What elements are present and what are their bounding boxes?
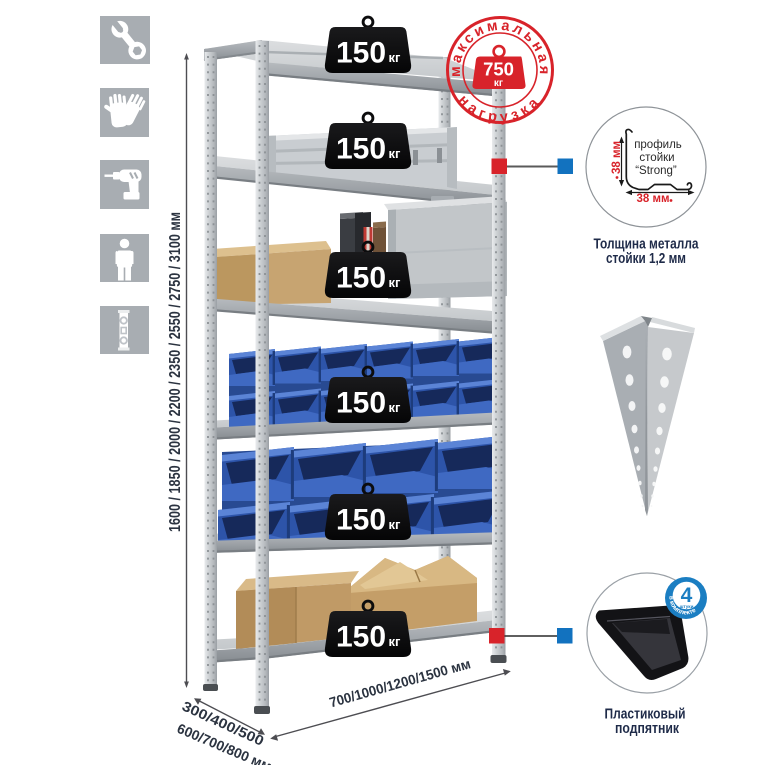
- svg-text:38 мм: 38 мм: [636, 193, 669, 205]
- svg-text:стойки: стойки: [639, 152, 674, 164]
- svg-text:750: 750: [483, 59, 514, 80]
- svg-text:1600 / 1850 / 2000 / 2200 / 23: 1600 / 1850 / 2000 / 2200 / 2350 / 2550 …: [167, 212, 184, 532]
- svg-text:подпятник: подпятник: [615, 721, 680, 737]
- svg-text:стойки 1,2 мм: стойки 1,2 мм: [606, 251, 686, 267]
- svg-text:профиль: профиль: [634, 139, 682, 151]
- svg-text:кг: кг: [494, 78, 503, 89]
- svg-text:“Strong”: “Strong”: [635, 165, 677, 177]
- svg-text:38 мм: 38 мм: [611, 141, 623, 174]
